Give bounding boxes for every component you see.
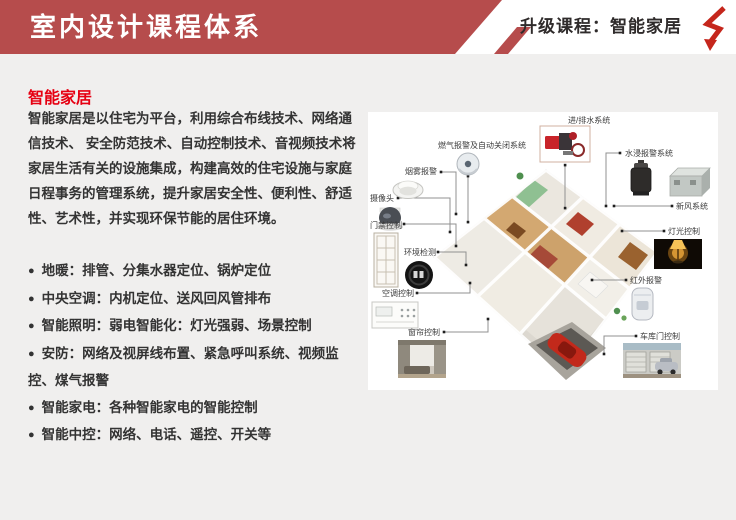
page-title: 室内设计课程体系 bbox=[30, 0, 262, 54]
smoke-detector-icon bbox=[393, 181, 423, 199]
water-pump-icon bbox=[540, 126, 590, 162]
callout-label-infrared-alarm: 红外报警 bbox=[630, 275, 662, 285]
callout-light-control: 灯光控制 bbox=[654, 226, 702, 269]
list-item: ●智能中控：网络、电话、遥控、开关等 bbox=[28, 422, 362, 450]
list-item: ●安防：网络及视屏线布置、紧急呼叫系统、视频监控、煤气报警 bbox=[28, 341, 362, 395]
callout-label-ac-control: 空调控制 bbox=[382, 288, 414, 298]
callout-curtain-control: 窗帘控制 bbox=[398, 327, 446, 378]
red-zigzag-arrow-icon bbox=[688, 3, 728, 52]
plant-icon bbox=[614, 308, 620, 314]
callout-label-smoke-alarm: 烟雾报警 bbox=[405, 166, 437, 176]
callout-smoke-alarm: 烟雾报警 bbox=[393, 166, 437, 199]
callout-label-gas-alarm: 燃气报警及自动关闭系统 bbox=[438, 140, 526, 150]
callout-label-camera: 摄像头 bbox=[370, 193, 394, 203]
callout-label-garage-door: 车库门控制 bbox=[640, 331, 680, 341]
callout-label-environment: 环境检测 bbox=[404, 247, 436, 257]
bullet-icon: ● bbox=[28, 429, 35, 441]
list-item: ●智能照明：弱电智能化：灯光强弱、场景控制 bbox=[28, 313, 362, 341]
bullet-icon: ● bbox=[28, 320, 35, 332]
callout-ac-control: 空调控制 bbox=[372, 288, 418, 328]
callout-label-curtain-control: 窗帘控制 bbox=[408, 327, 440, 337]
smart-home-diagram-svg: 进/排水系统 燃气报警及自动关闭系统 烟雾报警 摄像头 bbox=[368, 112, 718, 390]
ventilation-unit-icon bbox=[670, 168, 710, 196]
section-heading: 智能家居 bbox=[28, 84, 92, 108]
callout-label-water-system: 进/排水系统 bbox=[568, 115, 610, 125]
callout-environment: 环境检测 bbox=[404, 247, 436, 289]
callout-water-leak: 水浸报警系统 bbox=[625, 148, 673, 196]
callout-label-door-access: 门禁控制 bbox=[370, 220, 402, 230]
lamp-photo-icon bbox=[654, 239, 702, 269]
ac-panel-icon bbox=[372, 302, 418, 328]
garage-photo-icon bbox=[623, 343, 681, 378]
callout-infrared-alarm: 红外报警 bbox=[630, 275, 662, 320]
header-subtitle: 升级课程：智能家居 bbox=[520, 0, 682, 54]
callout-water-system: 进/排水系统 bbox=[540, 115, 610, 162]
plant-icon bbox=[621, 315, 626, 320]
callout-garage-door: 车库门控制 bbox=[623, 331, 681, 378]
callout-label-fresh-air: 新风系统 bbox=[676, 201, 708, 211]
callout-label-light-control: 灯光控制 bbox=[668, 226, 700, 236]
bullet-icon: ● bbox=[28, 293, 35, 305]
smart-home-diagram: 进/排水系统 燃气报警及自动关闭系统 烟雾报警 摄像头 bbox=[368, 112, 718, 390]
list-item: ●中央空调：内机定位、送风回风管排布 bbox=[28, 286, 362, 314]
feature-list: ●地暖：排管、分集水器定位、锅炉定位 ●中央空调：内机定位、送风回风管排布 ●智… bbox=[28, 258, 362, 450]
list-item: ●智能家电：各种智能家电的智能控制 bbox=[28, 395, 362, 423]
callout-fresh-air: 新风系统 bbox=[670, 168, 710, 211]
curtain-photo-icon bbox=[398, 340, 446, 378]
callout-label-water-leak: 水浸报警系统 bbox=[625, 148, 673, 158]
thermostat-icon bbox=[405, 261, 433, 289]
bullet-icon: ● bbox=[28, 348, 35, 360]
header-bar: 室内设计课程体系 升级课程：智能家居 bbox=[0, 0, 736, 54]
door-icon bbox=[374, 233, 398, 287]
bullet-icon: ● bbox=[28, 265, 35, 277]
list-item: ●地暖：排管、分集水器定位、锅炉定位 bbox=[28, 258, 362, 286]
canister-icon bbox=[631, 160, 651, 196]
intro-paragraph: 智能家居是以住宅为平台，利用综合布线技术、网络通信技术、 安全防范技术、自动控制… bbox=[28, 106, 356, 231]
bullet-icon: ● bbox=[28, 402, 35, 414]
callout-gas-alarm: 燃气报警及自动关闭系统 bbox=[438, 140, 526, 175]
plant-icon bbox=[517, 173, 524, 180]
gas-sensor-ball-icon bbox=[457, 153, 479, 175]
pir-sensor-icon bbox=[632, 288, 653, 320]
